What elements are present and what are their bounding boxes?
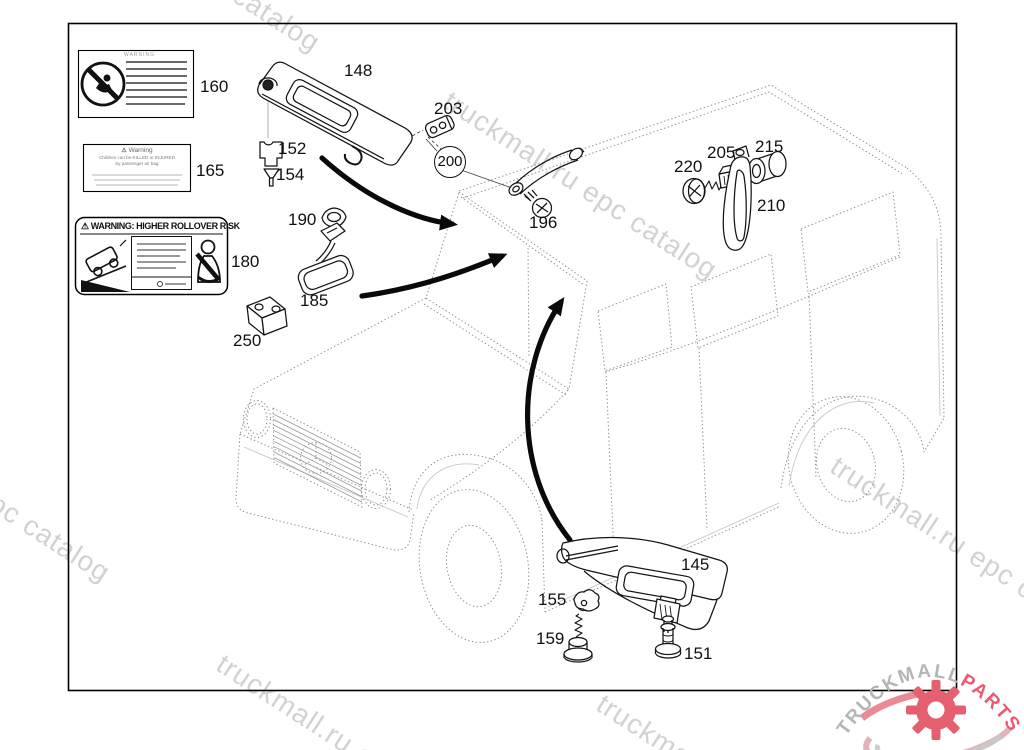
part-number-196: 196 xyxy=(529,214,557,231)
rear-view-mirror-185 xyxy=(296,223,356,297)
part-number-155: 155 xyxy=(538,591,566,608)
part-number-203: 203 xyxy=(434,100,462,117)
part-number-190: 190 xyxy=(288,211,316,228)
logo-text-parts: PARTS xyxy=(957,670,1024,736)
warning-triangle-icon: ⚠ xyxy=(121,148,126,154)
grommet-155 xyxy=(574,590,599,611)
part-number-250: 250 xyxy=(233,332,261,349)
part-number-205: 205 xyxy=(707,144,735,161)
part-number-148: 148 xyxy=(344,62,372,79)
rollover-header-text: WARNING: HIGHER ROLLOVER RISK xyxy=(91,221,240,231)
part-number-160: 160 xyxy=(200,78,228,95)
airbag-label-line3: by passenger air bag xyxy=(84,161,190,167)
part-number-185: 185 xyxy=(300,292,328,309)
warning-triangle-icon: ⚠ xyxy=(81,221,89,231)
part-number-151: 151 xyxy=(684,645,712,662)
arrow-visor145-to-windshield xyxy=(528,302,570,540)
rollover-label-header: ⚠ WARNING: HIGHER ROLLOVER RISK xyxy=(81,221,227,232)
airbag-warning-label-160 xyxy=(79,51,194,118)
part-number-145: 145 xyxy=(681,556,709,573)
part-number-210: 210 xyxy=(757,197,785,214)
airbag-label-line1: Warning xyxy=(129,147,153,154)
circled-callout-200: 200 xyxy=(434,146,466,178)
roller-215 xyxy=(748,152,786,184)
part-number-154: 154 xyxy=(276,166,304,183)
sun-visor-145 xyxy=(557,537,727,633)
part-number-159: 159 xyxy=(536,630,564,647)
part-number-165: 165 xyxy=(196,162,224,179)
truckmall-logo: TRUCKMALLPARTS xyxy=(818,626,1024,750)
grab-handle-200 xyxy=(507,146,585,198)
screw-159 xyxy=(564,614,592,662)
part-number-220: 220 xyxy=(674,158,702,175)
part-number-215: 215 xyxy=(755,138,783,155)
arrow-mirror185-to-windshield xyxy=(362,256,502,296)
gear-icon xyxy=(906,680,966,740)
part-number-180: 180 xyxy=(231,253,259,270)
bracket-250 xyxy=(247,297,287,335)
airbag-text-label: ⚠ Warning Children can be KILLED or INJU… xyxy=(84,147,190,166)
airbag-label-title: WARNING xyxy=(124,52,155,58)
airbag-label-line2: Children can be KILLED or INJURED xyxy=(84,155,190,161)
diagram-border xyxy=(69,24,957,691)
catalog-page: truckmall.ru epc catalog truckmall.ru ep… xyxy=(0,0,1024,750)
part-number-152: 152 xyxy=(278,140,306,157)
